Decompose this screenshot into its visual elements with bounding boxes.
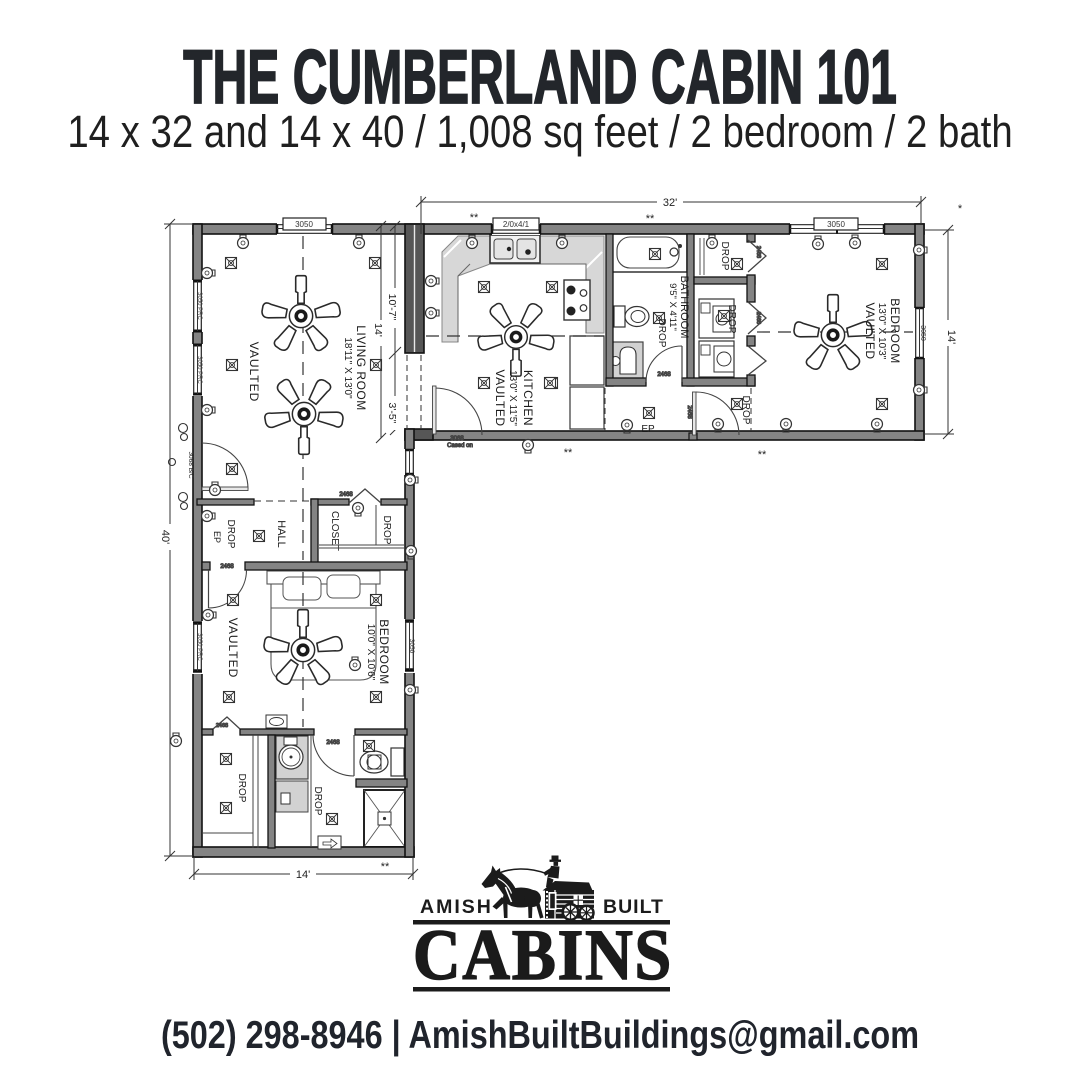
- svg-text:BEDROOM: BEDROOM: [888, 298, 902, 364]
- svg-text:14': 14': [945, 330, 957, 344]
- svg-text:DROP: DROP: [740, 396, 751, 425]
- svg-text:DROP: DROP: [225, 520, 236, 549]
- svg-text:**: **: [564, 447, 573, 459]
- svg-text:BATHROOM: BATHROOM: [678, 276, 690, 339]
- svg-text:DROP: DROP: [656, 319, 667, 348]
- svg-text:14': 14': [372, 323, 384, 337]
- svg-text:**: **: [381, 861, 390, 873]
- svg-text:14': 14': [296, 869, 310, 881]
- svg-text:3050 PRC: 3050 PRC: [196, 356, 202, 384]
- svg-text:2468: 2468: [755, 246, 761, 258]
- svg-text:3050: 3050: [827, 220, 845, 229]
- svg-text:**: **: [470, 212, 479, 224]
- svg-text:Cased on: Cased on: [447, 443, 473, 449]
- svg-text:DROP: DROP: [381, 516, 392, 545]
- svg-text:2468: 2468: [686, 405, 692, 419]
- svg-text:3050: 3050: [408, 639, 415, 654]
- svg-text:LIVING ROOM: LIVING ROOM: [354, 325, 368, 411]
- svg-text:13'0" X 11'5": 13'0" X 11'5": [507, 370, 518, 426]
- svg-text:3050 PRC: 3050 PRC: [196, 633, 202, 661]
- svg-text:40': 40': [159, 530, 171, 544]
- svg-text:10'0" X 10'6": 10'0" X 10'6": [365, 624, 376, 681]
- svg-text:2468: 2468: [216, 723, 228, 729]
- svg-text:2/0x4/1: 2/0x4/1: [503, 220, 530, 229]
- svg-text:DROP: DROP: [236, 774, 247, 803]
- svg-text:3050 PRC: 3050 PRC: [196, 292, 202, 320]
- svg-text:3068: 3068: [450, 436, 464, 442]
- svg-text:DROP: DROP: [312, 787, 323, 816]
- svg-text:10'-7": 10'-7": [386, 294, 398, 321]
- svg-text:VAULTED: VAULTED: [247, 342, 261, 403]
- svg-text:2468: 2468: [339, 492, 353, 498]
- svg-text:3068 B/C: 3068 B/C: [187, 451, 194, 478]
- svg-text:18'11" X 13'0": 18'11" X 13'0": [342, 337, 353, 399]
- svg-text:DROP: DROP: [719, 242, 730, 271]
- svg-text:EP: EP: [641, 424, 655, 435]
- svg-text:EP: EP: [212, 531, 222, 543]
- svg-text:3050: 3050: [295, 220, 313, 229]
- svg-text:VAULTED: VAULTED: [863, 302, 877, 359]
- svg-text:HALL: HALL: [275, 520, 287, 548]
- svg-text:*: *: [958, 203, 963, 215]
- svg-text:3050: 3050: [919, 325, 926, 341]
- svg-text:**: **: [758, 449, 767, 461]
- svg-text:2468: 2468: [220, 564, 234, 570]
- svg-text:**: **: [646, 213, 655, 225]
- svg-text:KITCHEN: KITCHEN: [521, 370, 535, 426]
- svg-text:2468: 2468: [326, 740, 340, 746]
- svg-text:DROP: DROP: [726, 305, 737, 334]
- svg-text:2468: 2468: [657, 372, 671, 378]
- svg-text:VAULTED: VAULTED: [493, 369, 507, 426]
- svg-text:BEDROOM: BEDROOM: [377, 619, 391, 685]
- svg-text:3'-5": 3'-5": [386, 403, 398, 424]
- svg-text:32': 32': [663, 197, 677, 209]
- svg-text:CABINS: CABINS: [413, 915, 673, 995]
- svg-text:2468: 2468: [755, 312, 761, 324]
- svg-text:9'5" X 4'11": 9'5" X 4'11": [667, 283, 678, 331]
- svg-text:VAULTED: VAULTED: [226, 618, 240, 679]
